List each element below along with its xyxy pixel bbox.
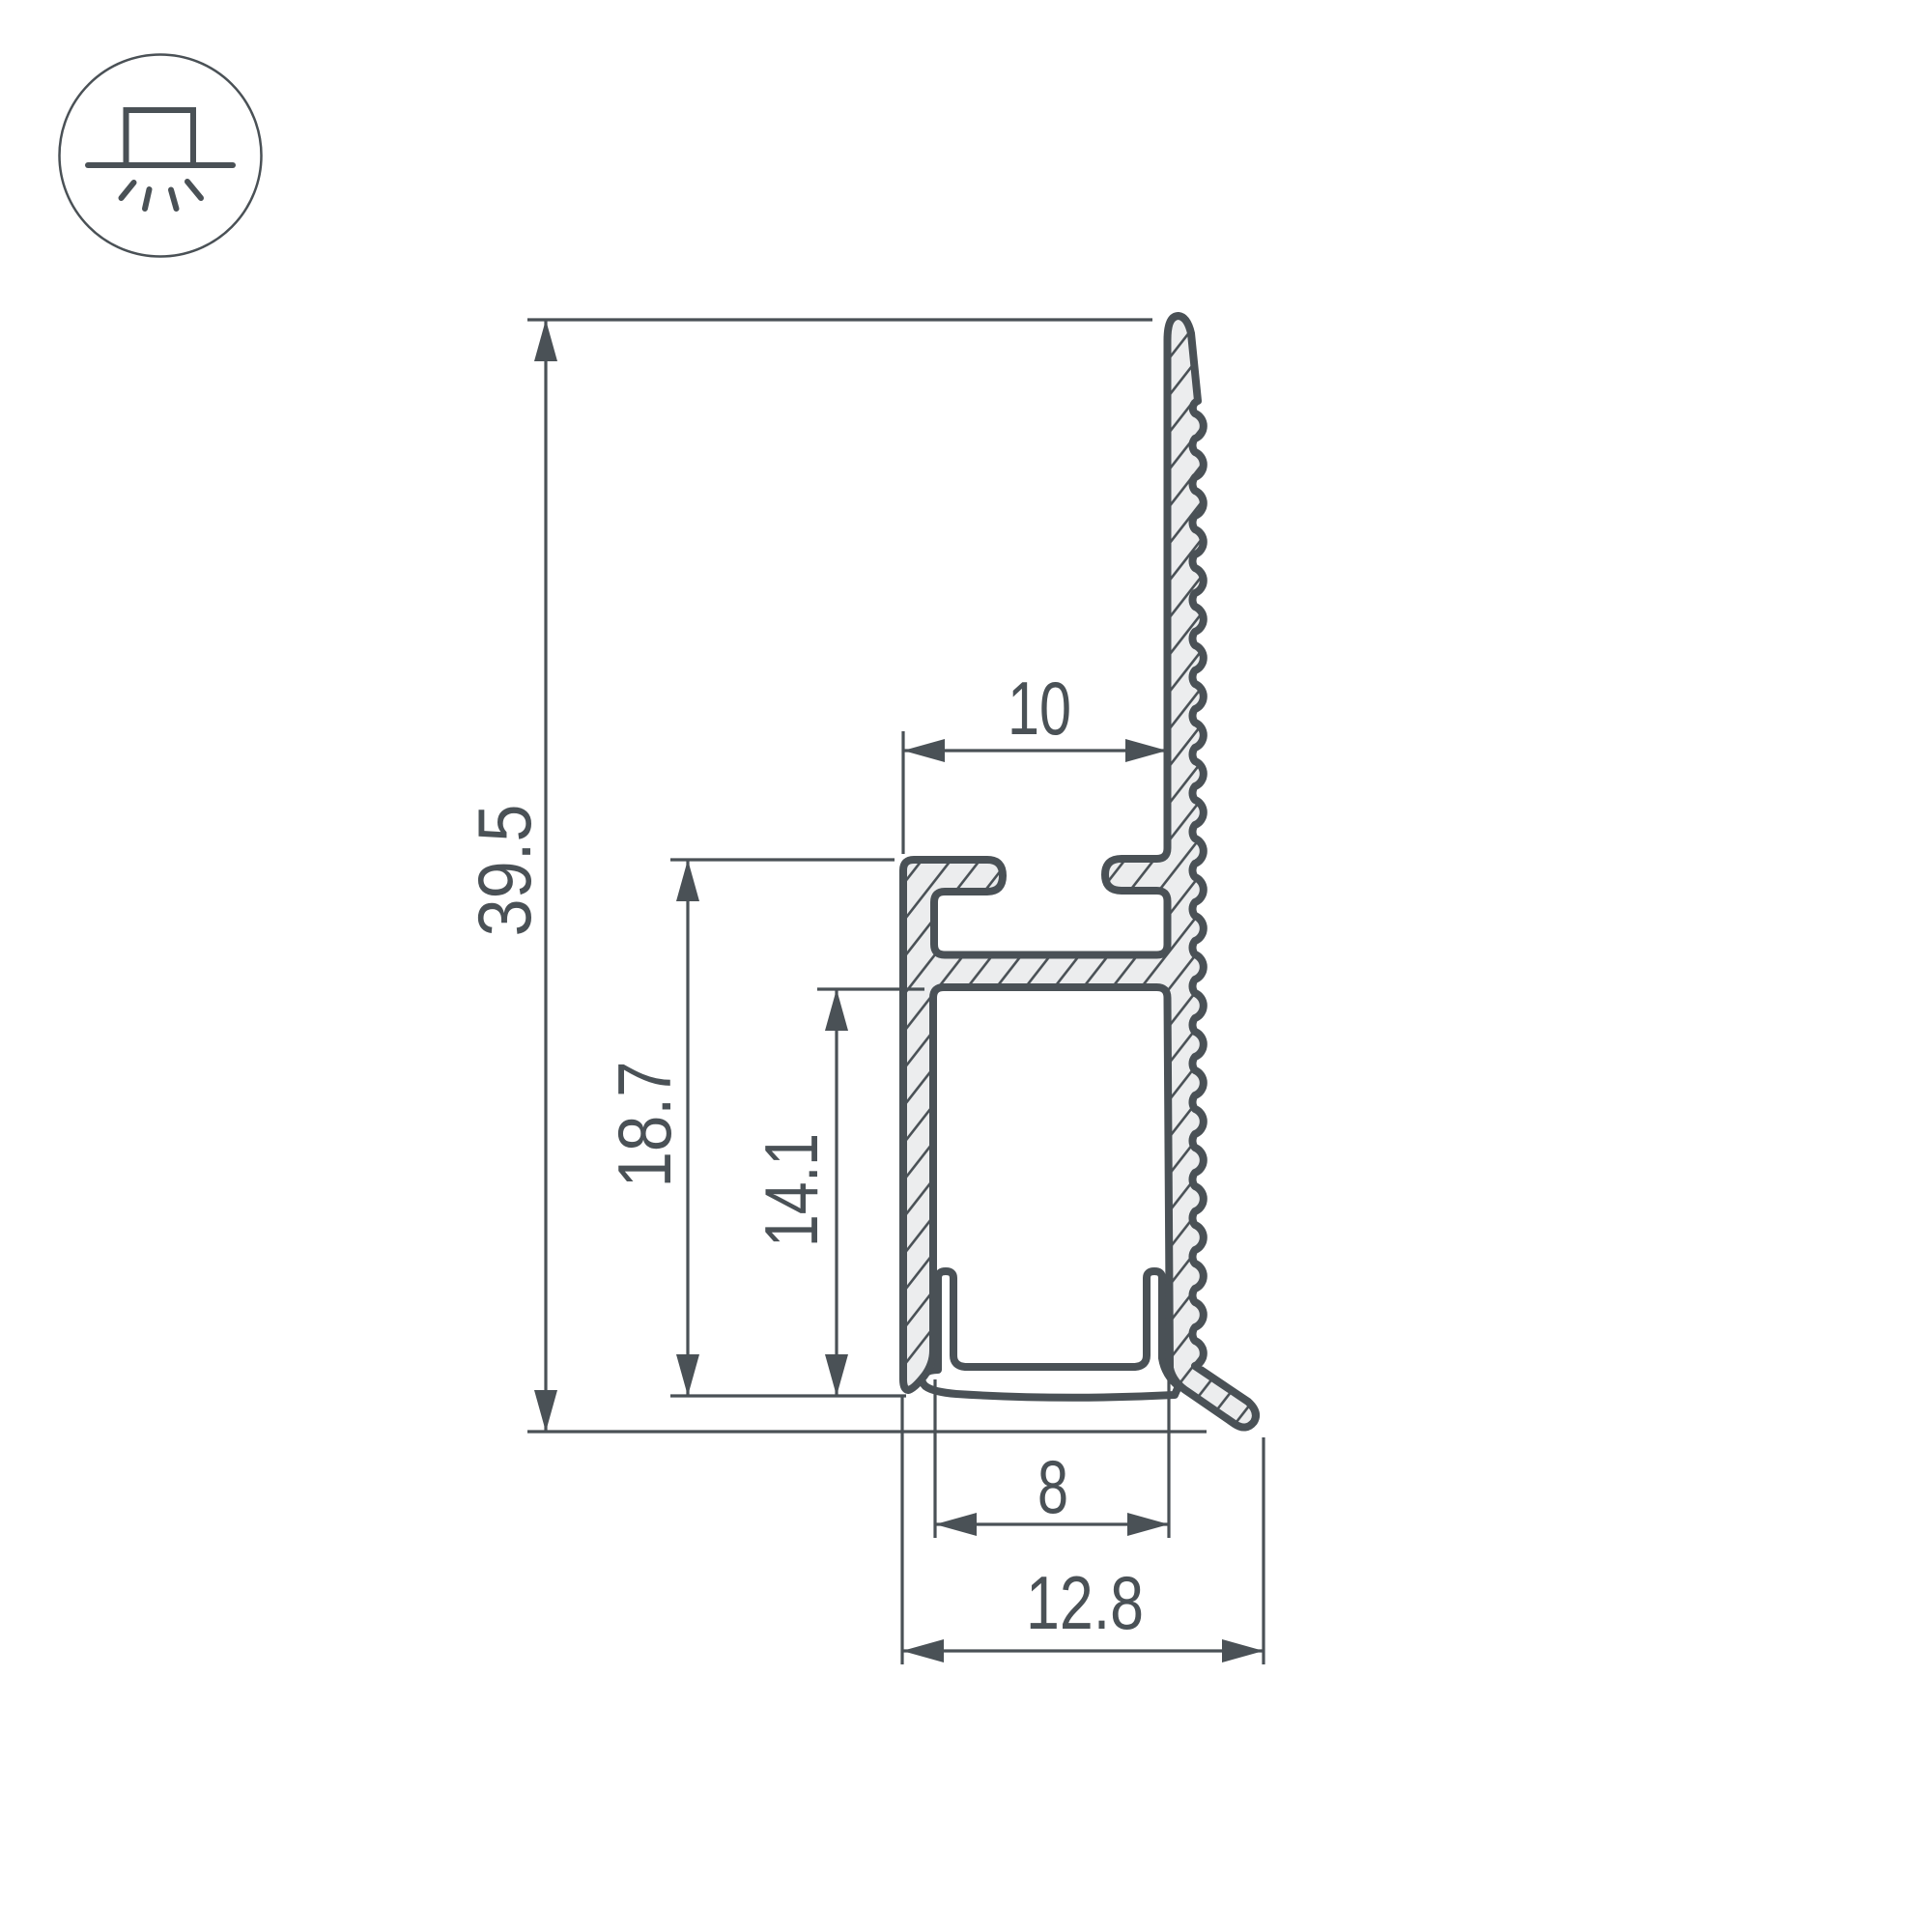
- svg-text:12.8: 12.8: [1026, 1560, 1144, 1645]
- svg-text:39.5: 39.5: [462, 805, 547, 937]
- svg-text:14.1: 14.1: [749, 1133, 834, 1247]
- svg-text:18.7: 18.7: [602, 1062, 687, 1188]
- svg-text:8: 8: [1037, 1444, 1068, 1529]
- svg-text:10: 10: [1008, 666, 1071, 751]
